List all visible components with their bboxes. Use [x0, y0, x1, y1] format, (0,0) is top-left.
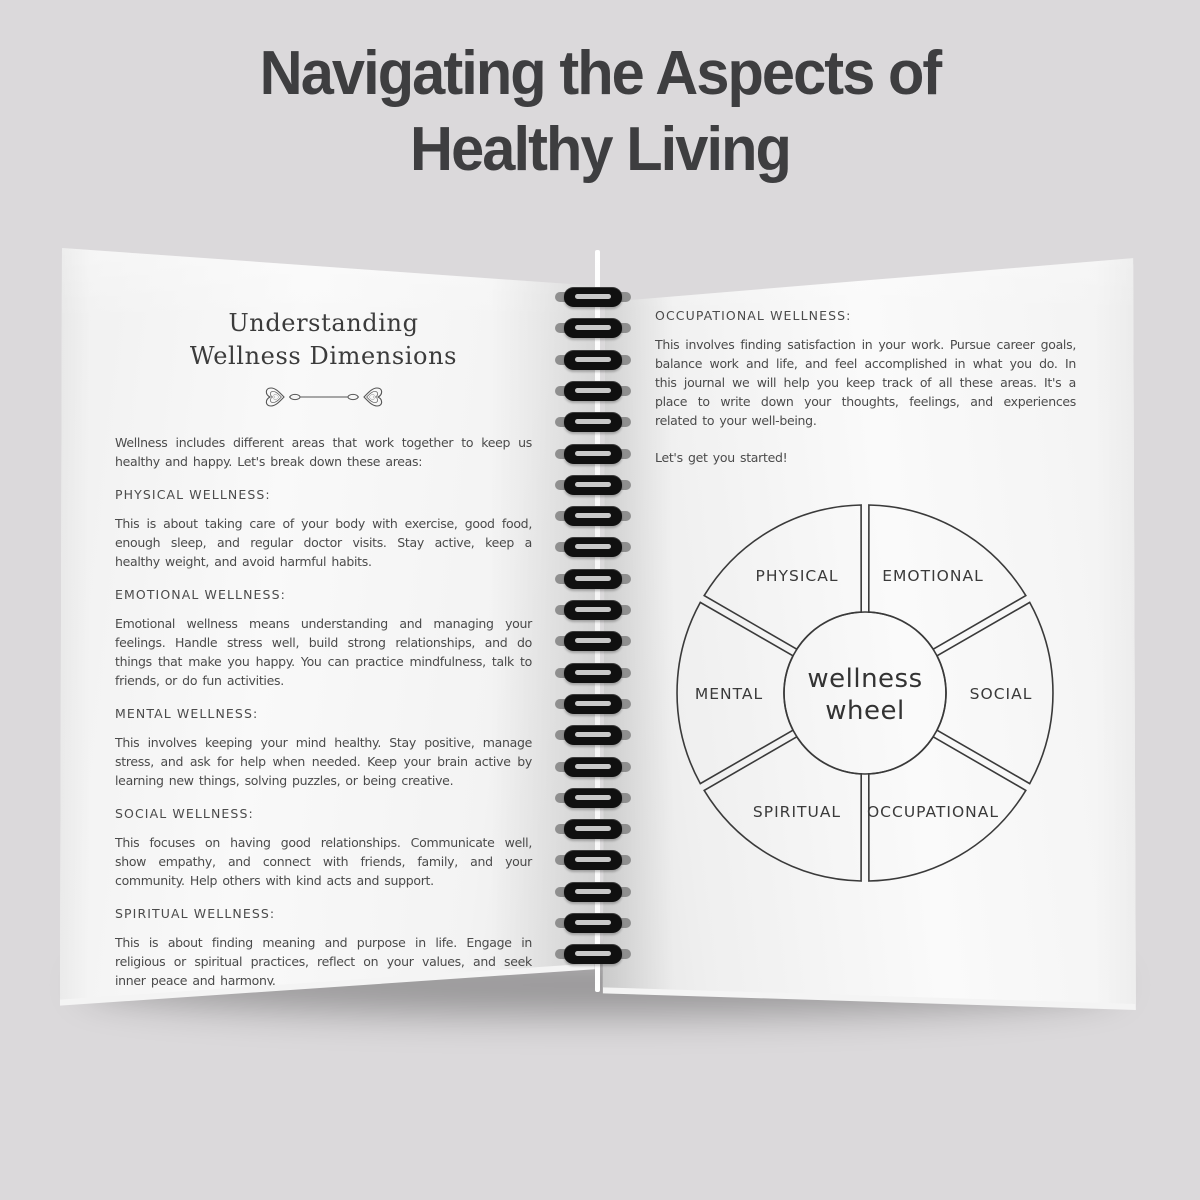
ornament-divider-icon: [264, 383, 384, 411]
spiral-coil-icon: [564, 537, 622, 557]
spiral-coil-icon: [564, 882, 622, 902]
spiral-coil-icon: [564, 475, 622, 495]
spiral-coil-icon: [564, 850, 622, 870]
spiral-coil-icon: [564, 631, 622, 651]
page-title: Navigating the Aspects of Healthy Living: [24, 36, 1176, 188]
spiral-coil-icon: [564, 694, 622, 714]
journal-heading-line1: Understanding: [228, 309, 418, 337]
wheel-segment-label: EMOTIONAL: [882, 567, 983, 585]
wheel-center-label-line1: wellness: [807, 664, 922, 694]
spiral-coil-icon: [564, 381, 622, 401]
intro-paragraph: Wellness includes different areas that w…: [115, 433, 532, 471]
section-body-occupational: This involves finding satisfaction in yo…: [655, 335, 1076, 430]
right-page-content: OCCUPATIONAL WELLNESS: This involves fin…: [598, 246, 1138, 467]
section-label-mental: MENTAL WELLNESS:: [115, 706, 532, 721]
section-label-spiritual: SPIRITUAL WELLNESS:: [115, 906, 532, 921]
wheel-segment-label: MENTAL: [695, 685, 763, 703]
spiral-coil-icon: [564, 944, 622, 964]
journal-heading: Understanding Wellness Dimensions: [115, 307, 532, 373]
spiral-coil-icon: [564, 350, 622, 370]
section-body-social: This focuses on having good relationship…: [115, 833, 532, 890]
wheel-segment-label: SPIRITUAL: [753, 803, 841, 821]
spiral-coil-icon: [564, 444, 622, 464]
page-title-line2: Healthy Living: [24, 112, 1176, 188]
spiral-coil-icon: [564, 913, 622, 933]
spiral-coil-icon: [564, 819, 622, 839]
spiral-coil-icon: [564, 569, 622, 589]
section-label-social: SOCIAL WELLNESS:: [115, 806, 532, 821]
spiral-coil-icon: [564, 757, 622, 777]
journal-heading-line2: Wellness Dimensions: [190, 342, 457, 370]
section-body-emotional: Emotional wellness means understanding a…: [115, 614, 532, 690]
wheel-segment-label: PHYSICAL: [756, 567, 839, 585]
page-title-line1: Navigating the Aspects of: [24, 36, 1176, 112]
left-page: Understanding Wellness Dimensions Wellne…: [58, 245, 598, 1005]
wheel-segment-label: SOCIAL: [970, 685, 1033, 703]
spiral-coil-icon: [564, 412, 622, 432]
spiral-coil-icon: [564, 318, 622, 338]
wellness-wheel-diagram: PHYSICALEMOTIONALSOCIALOCCUPATIONALSPIRI…: [670, 498, 1060, 888]
right-page: OCCUPATIONAL WELLNESS: This involves fin…: [598, 246, 1138, 1004]
spiral-coil-icon: [564, 663, 622, 683]
spiral-coil-icon: [564, 600, 622, 620]
callout-text: Let's get you started!: [655, 448, 1076, 467]
spiral-coil-icon: [564, 287, 622, 307]
section-label-physical: PHYSICAL WELLNESS:: [115, 487, 532, 502]
left-page-content: Understanding Wellness Dimensions Wellne…: [58, 245, 598, 990]
wheel-segment-label: OCCUPATIONAL: [867, 803, 999, 821]
spiral-coil-icon: [564, 506, 622, 526]
spiral-coil-icon: [564, 788, 622, 808]
section-label-emotional: EMOTIONAL WELLNESS:: [115, 587, 532, 602]
spiral-coil-icon: [564, 725, 622, 745]
section-body-mental: This involves keeping your mind healthy.…: [115, 733, 532, 790]
section-label-occupational: OCCUPATIONAL WELLNESS:: [655, 308, 1076, 323]
spiral-binding: [564, 287, 622, 977]
wheel-center-label-line2: wheel: [825, 696, 904, 726]
section-body-physical: This is about taking care of your body w…: [115, 514, 532, 571]
